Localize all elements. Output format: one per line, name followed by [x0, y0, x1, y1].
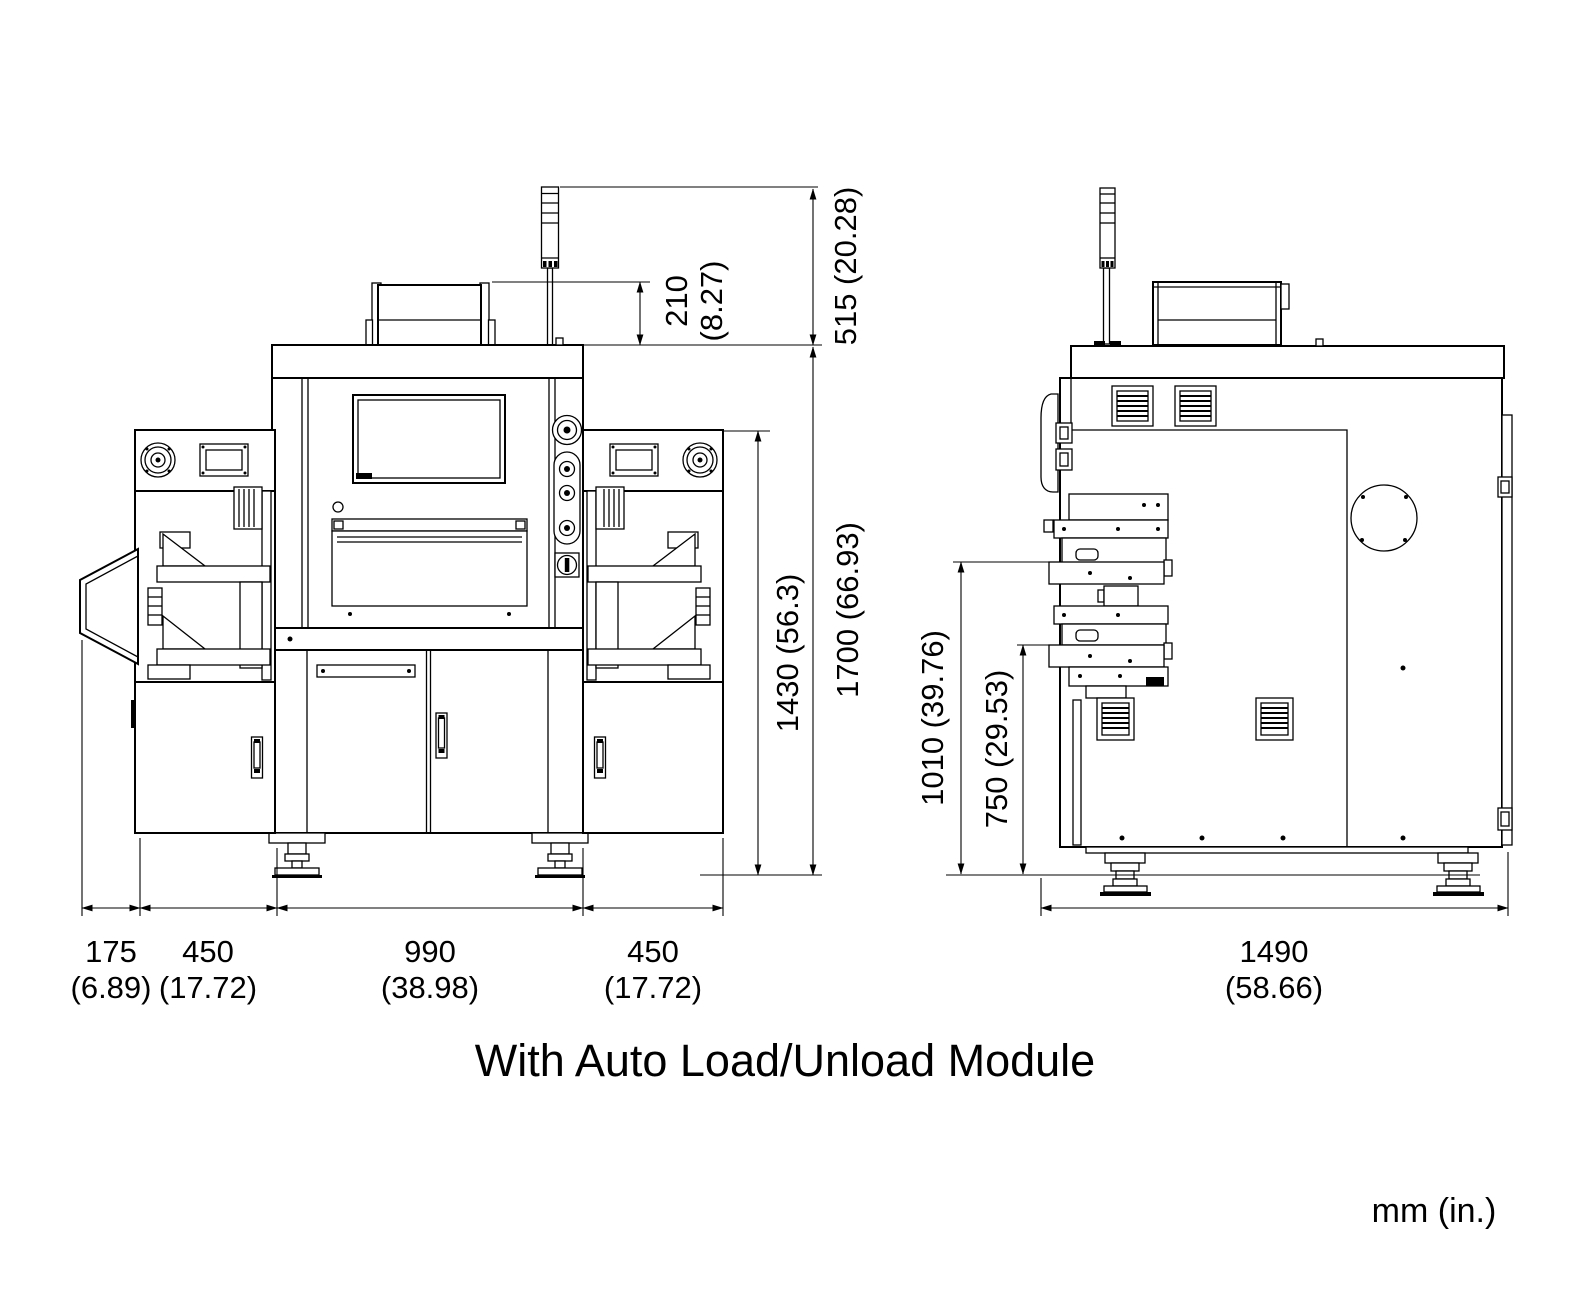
- drawing-caption: With Auto Load/Unload Module: [475, 1035, 1095, 1086]
- front-view: [80, 187, 723, 878]
- control-column: [553, 416, 582, 578]
- louver-vent: [1097, 698, 1134, 740]
- dimension-drawing: 210 (8.27) 515 (20.28) 1700 (66.93) 1430…: [0, 0, 1576, 1301]
- magazine-handle: [1076, 630, 1098, 641]
- dim-total-height: 1700 (66.93): [830, 522, 865, 698]
- lower-conveyor-rail: [1049, 645, 1164, 667]
- dim-right-module-width-in: (17.72): [604, 970, 702, 1005]
- dim-roof-box-height-in: (8.27): [694, 261, 729, 342]
- upper-conveyor-rail: [1049, 562, 1164, 584]
- roof-stub: [556, 338, 563, 345]
- center-roof-band: [272, 345, 583, 378]
- unload-module-right: [583, 430, 723, 833]
- load-module-left: [131, 430, 275, 833]
- side-view: [1041, 188, 1512, 896]
- roof-enclosure-side: [1153, 282, 1289, 345]
- center-lower-cabinet: [272, 650, 583, 833]
- door-handle-left-module: [252, 737, 263, 778]
- board-slot: [332, 519, 527, 616]
- door-vent-strip: [317, 665, 415, 677]
- counter-display-left: [200, 444, 248, 476]
- dim-depth-mm: 1490: [1240, 934, 1309, 969]
- technical-drawing-page: 210 (8.27) 515 (20.28) 1700 (66.93) 1430…: [0, 0, 1576, 1301]
- dim-roof-box-height-mm: 210: [659, 275, 694, 327]
- door-handle: [436, 713, 447, 758]
- outfeed-chute: [80, 549, 138, 664]
- dim-center-width-in: (38.98): [381, 970, 479, 1005]
- dim-upper-conveyor-height: 1010 (39.76): [915, 630, 950, 806]
- dim-chute-width-in: (6.89): [71, 970, 152, 1005]
- side-roof-stub: [1316, 339, 1323, 346]
- side-roof-band: [1071, 346, 1504, 378]
- dim-chute-width-mm: 175: [85, 934, 137, 969]
- dim-center-width-mm: 990: [404, 934, 456, 969]
- dim-module-height: 1430 (56.3): [770, 574, 805, 733]
- hmi-monitor: [353, 395, 505, 483]
- dim-right-module-width-mm: 450: [627, 934, 679, 969]
- dim-left-module-width-in: (17.72): [159, 970, 257, 1005]
- signal-tower-front: [542, 187, 559, 345]
- dim-beacon-height: 515 (20.28): [828, 187, 863, 346]
- base-plate: [1086, 847, 1468, 853]
- units-label: mm (in.): [1372, 1192, 1497, 1230]
- door-handle-right-module: [595, 737, 606, 778]
- dim-lower-conveyor-height: 750 (29.53): [979, 670, 1014, 829]
- signal-tower-side: [1094, 188, 1121, 345]
- dim-left-module-width-mm: 450: [182, 934, 234, 969]
- roof-enclosure-front: [366, 283, 495, 345]
- louver-vent: [1175, 386, 1216, 426]
- magazine-handle: [1076, 549, 1098, 560]
- dim-depth-in: (58.66): [1225, 970, 1323, 1005]
- louver-vent: [1256, 698, 1293, 740]
- counter-display-right: [610, 444, 658, 476]
- leveling-foot-right: [532, 833, 588, 878]
- louver-vent: [1112, 386, 1153, 426]
